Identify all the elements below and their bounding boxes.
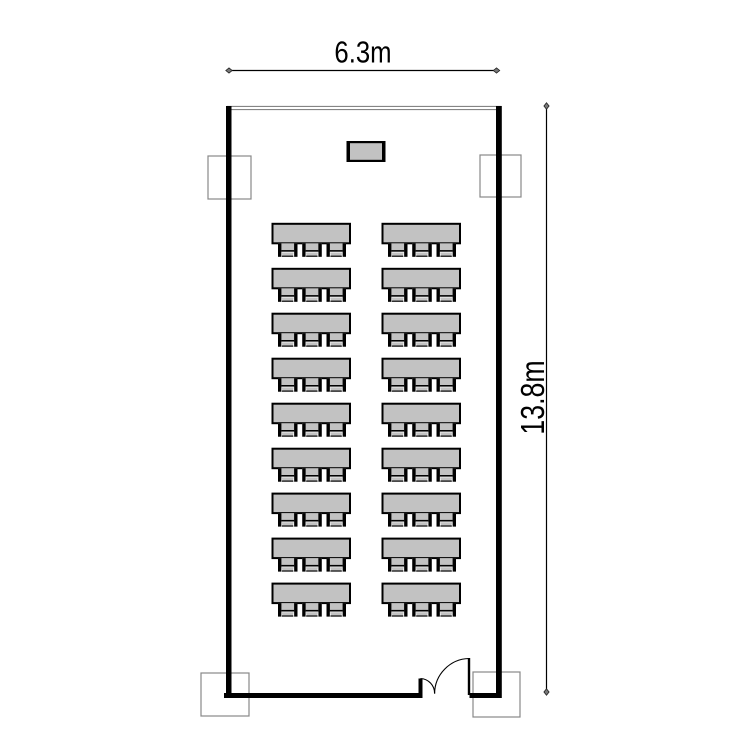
svg-text:6.3m: 6.3m: [334, 35, 391, 70]
